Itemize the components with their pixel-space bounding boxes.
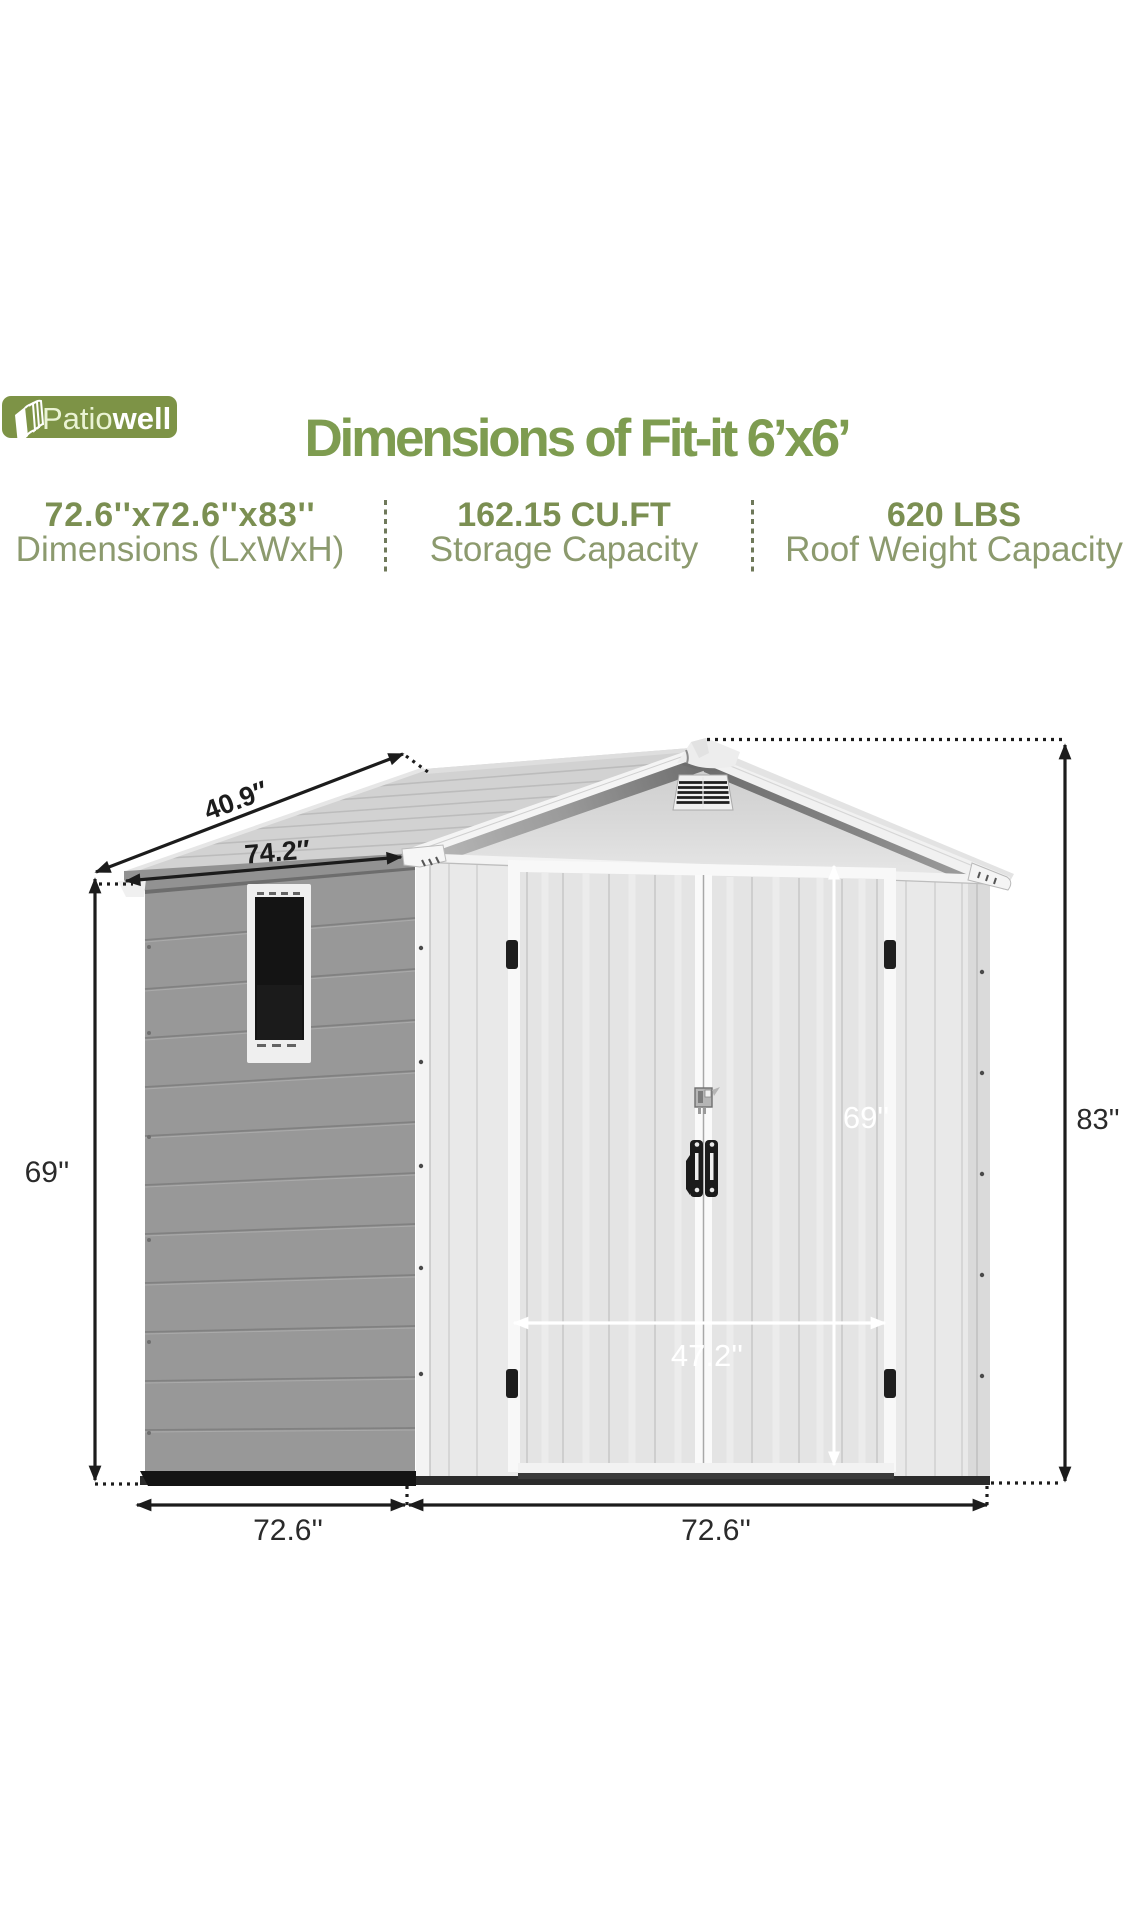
svg-text:72.6'': 72.6'' [253,1514,323,1547]
svg-text:72.6'': 72.6'' [681,1514,751,1547]
svg-text:69'': 69'' [25,1156,70,1189]
svg-text:47.2'': 47.2'' [671,1338,743,1373]
svg-text:74.2″: 74.2″ [243,834,311,869]
svg-text:69'': 69'' [843,1100,889,1135]
svg-text:83'': 83'' [1076,1104,1119,1136]
